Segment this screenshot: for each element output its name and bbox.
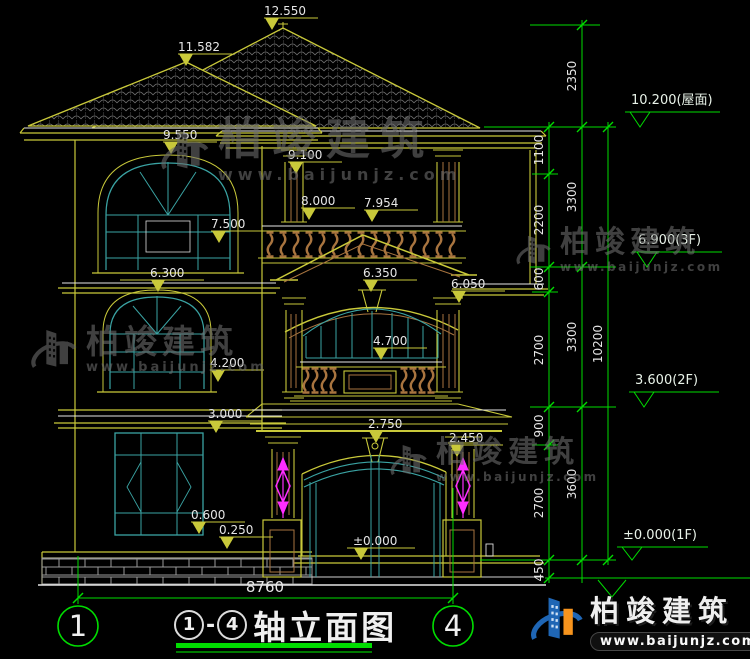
svg-text:8.000: 8.000 [301,194,335,208]
axis-bubble-right: 4 [433,606,473,646]
svg-text:2700: 2700 [532,488,546,519]
floor-mark-roof: 10.200(屋面) [625,93,720,127]
lamp-ornament [276,458,290,518]
floor-marks: 10.200(屋面) 6.900(3F) 3.600(2F) ±0.000(1F… [598,93,722,597]
title-separator: - [206,613,215,638]
svg-text:6.050: 6.050 [451,277,485,291]
level-mark-0250: 0.250 [219,523,273,549]
svg-text:4: 4 [444,609,462,643]
balustrade-2f [290,362,452,401]
svg-text:6.350: 6.350 [363,266,397,280]
floor-mark-1f: ±0.000(1F) [617,528,708,560]
svg-text:3.600(2F): 3.600(2F) [635,373,698,388]
axis-bubble-left: 1 [58,606,98,646]
svg-text:0.600: 0.600 [191,508,225,522]
base-terrace [38,552,546,585]
entrance-pilaster-left [262,431,304,577]
watermark-right: 柏竣建筑 www.baijunjz.com [514,228,723,274]
window-1f-left [115,433,203,535]
watermark-logo-icon [388,438,428,484]
title-text: 轴立面图 [253,601,397,649]
title-axis-start: 1 [174,610,204,640]
elevation-sheet: 12.550 11.582 9.550 9.100 8.000 7.954 7.… [0,0,750,659]
svg-text:2.750: 2.750 [368,417,402,431]
brand-logo: 柏竣建筑 www.baijunjz.com [528,588,750,651]
level-mark-12550: 12.550 [264,4,318,30]
level-mark-6350: 6.350 [363,266,417,292]
svg-text:6.300: 6.300 [150,266,184,280]
svg-text:3300: 3300 [565,322,579,353]
floor-mark-2f: 3.600(2F) [629,373,719,407]
svg-text:450: 450 [532,559,546,582]
brand-logo-icon [528,589,584,651]
svg-text:±0.000(1F): ±0.000(1F) [623,528,697,543]
svg-text:11.582: 11.582 [178,40,220,54]
level-mark-6050: 6.050 [451,277,505,303]
balcony-panel [344,371,396,393]
title-underline-shadow [176,651,372,653]
window-2f-bay [303,309,441,358]
svg-text:10.200(屋面): 10.200(屋面) [631,93,713,108]
brand-url: www.baijunjz.com [590,632,750,651]
dim-chain-inner: 1100 2200 600 2700 900 2700 450 [532,135,546,582]
svg-text:3.000: 3.000 [208,407,242,421]
svg-text:12.550: 12.550 [264,4,306,18]
svg-text:2700: 2700 [532,335,546,366]
level-mark-4700: 4.700 [373,334,427,360]
watermark-bottom: 柏竣建筑 www.baijunjz.com [388,438,599,484]
svg-text:10200: 10200 [591,325,605,363]
svg-text:0.250: 0.250 [219,523,253,537]
svg-text:1100: 1100 [532,135,546,166]
dim-chain-outer: 10200 [591,325,605,363]
watermark-logo-icon [514,229,552,273]
level-mark-8000: 8.000 [301,194,355,220]
svg-text:8760: 8760 [246,578,284,596]
svg-text:4.700: 4.700 [373,334,407,348]
svg-text:1: 1 [69,609,87,643]
svg-text:7.954: 7.954 [364,196,398,210]
watermark-logo-icon [28,322,78,378]
brand-name: 柏竣建筑 [590,588,734,630]
keystone-1f [362,438,388,462]
svg-text:3300: 3300 [565,182,579,213]
svg-text:±0.000: ±0.000 [353,534,397,548]
watermark-top: 柏竣建筑 www.baijunjz.com [158,118,461,184]
watermark-logo-icon [158,122,210,180]
watermark-left: 柏竣建筑 www.baijunjz.com [28,322,267,378]
svg-text:7.500: 7.500 [211,217,245,231]
level-mark-7954: 7.954 [364,196,418,222]
title-underline [176,643,372,648]
drawing-title: 1 - 4 轴立面图 [174,601,397,649]
title-axis-end: 4 [217,610,247,640]
svg-text:2350: 2350 [565,61,579,92]
slab-3f-left [58,283,280,293]
